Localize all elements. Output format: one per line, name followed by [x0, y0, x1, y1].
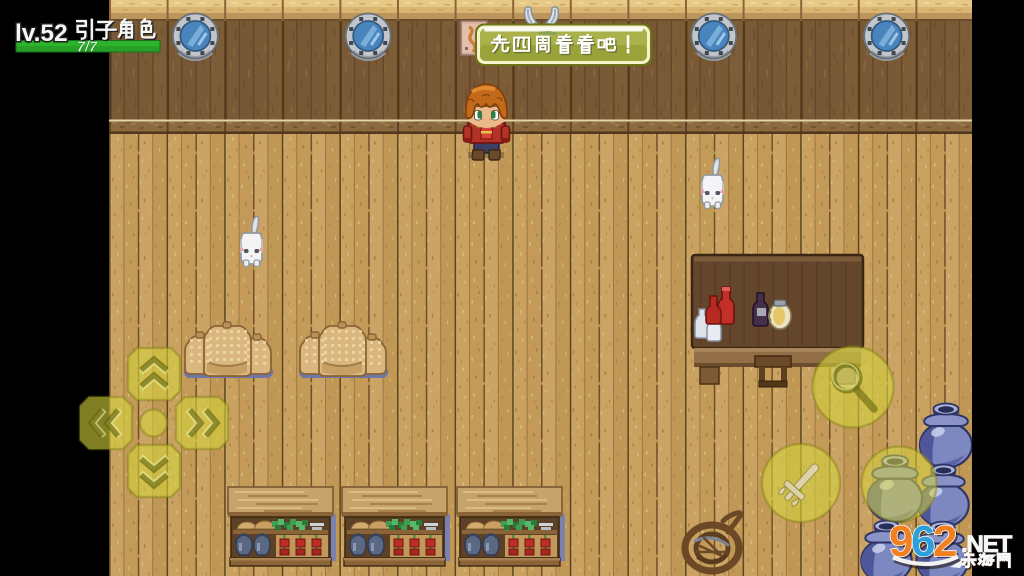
svg-text:7/7: 7/7 [77, 40, 98, 56]
svg-text:lv.52: lv.52 [15, 20, 68, 47]
